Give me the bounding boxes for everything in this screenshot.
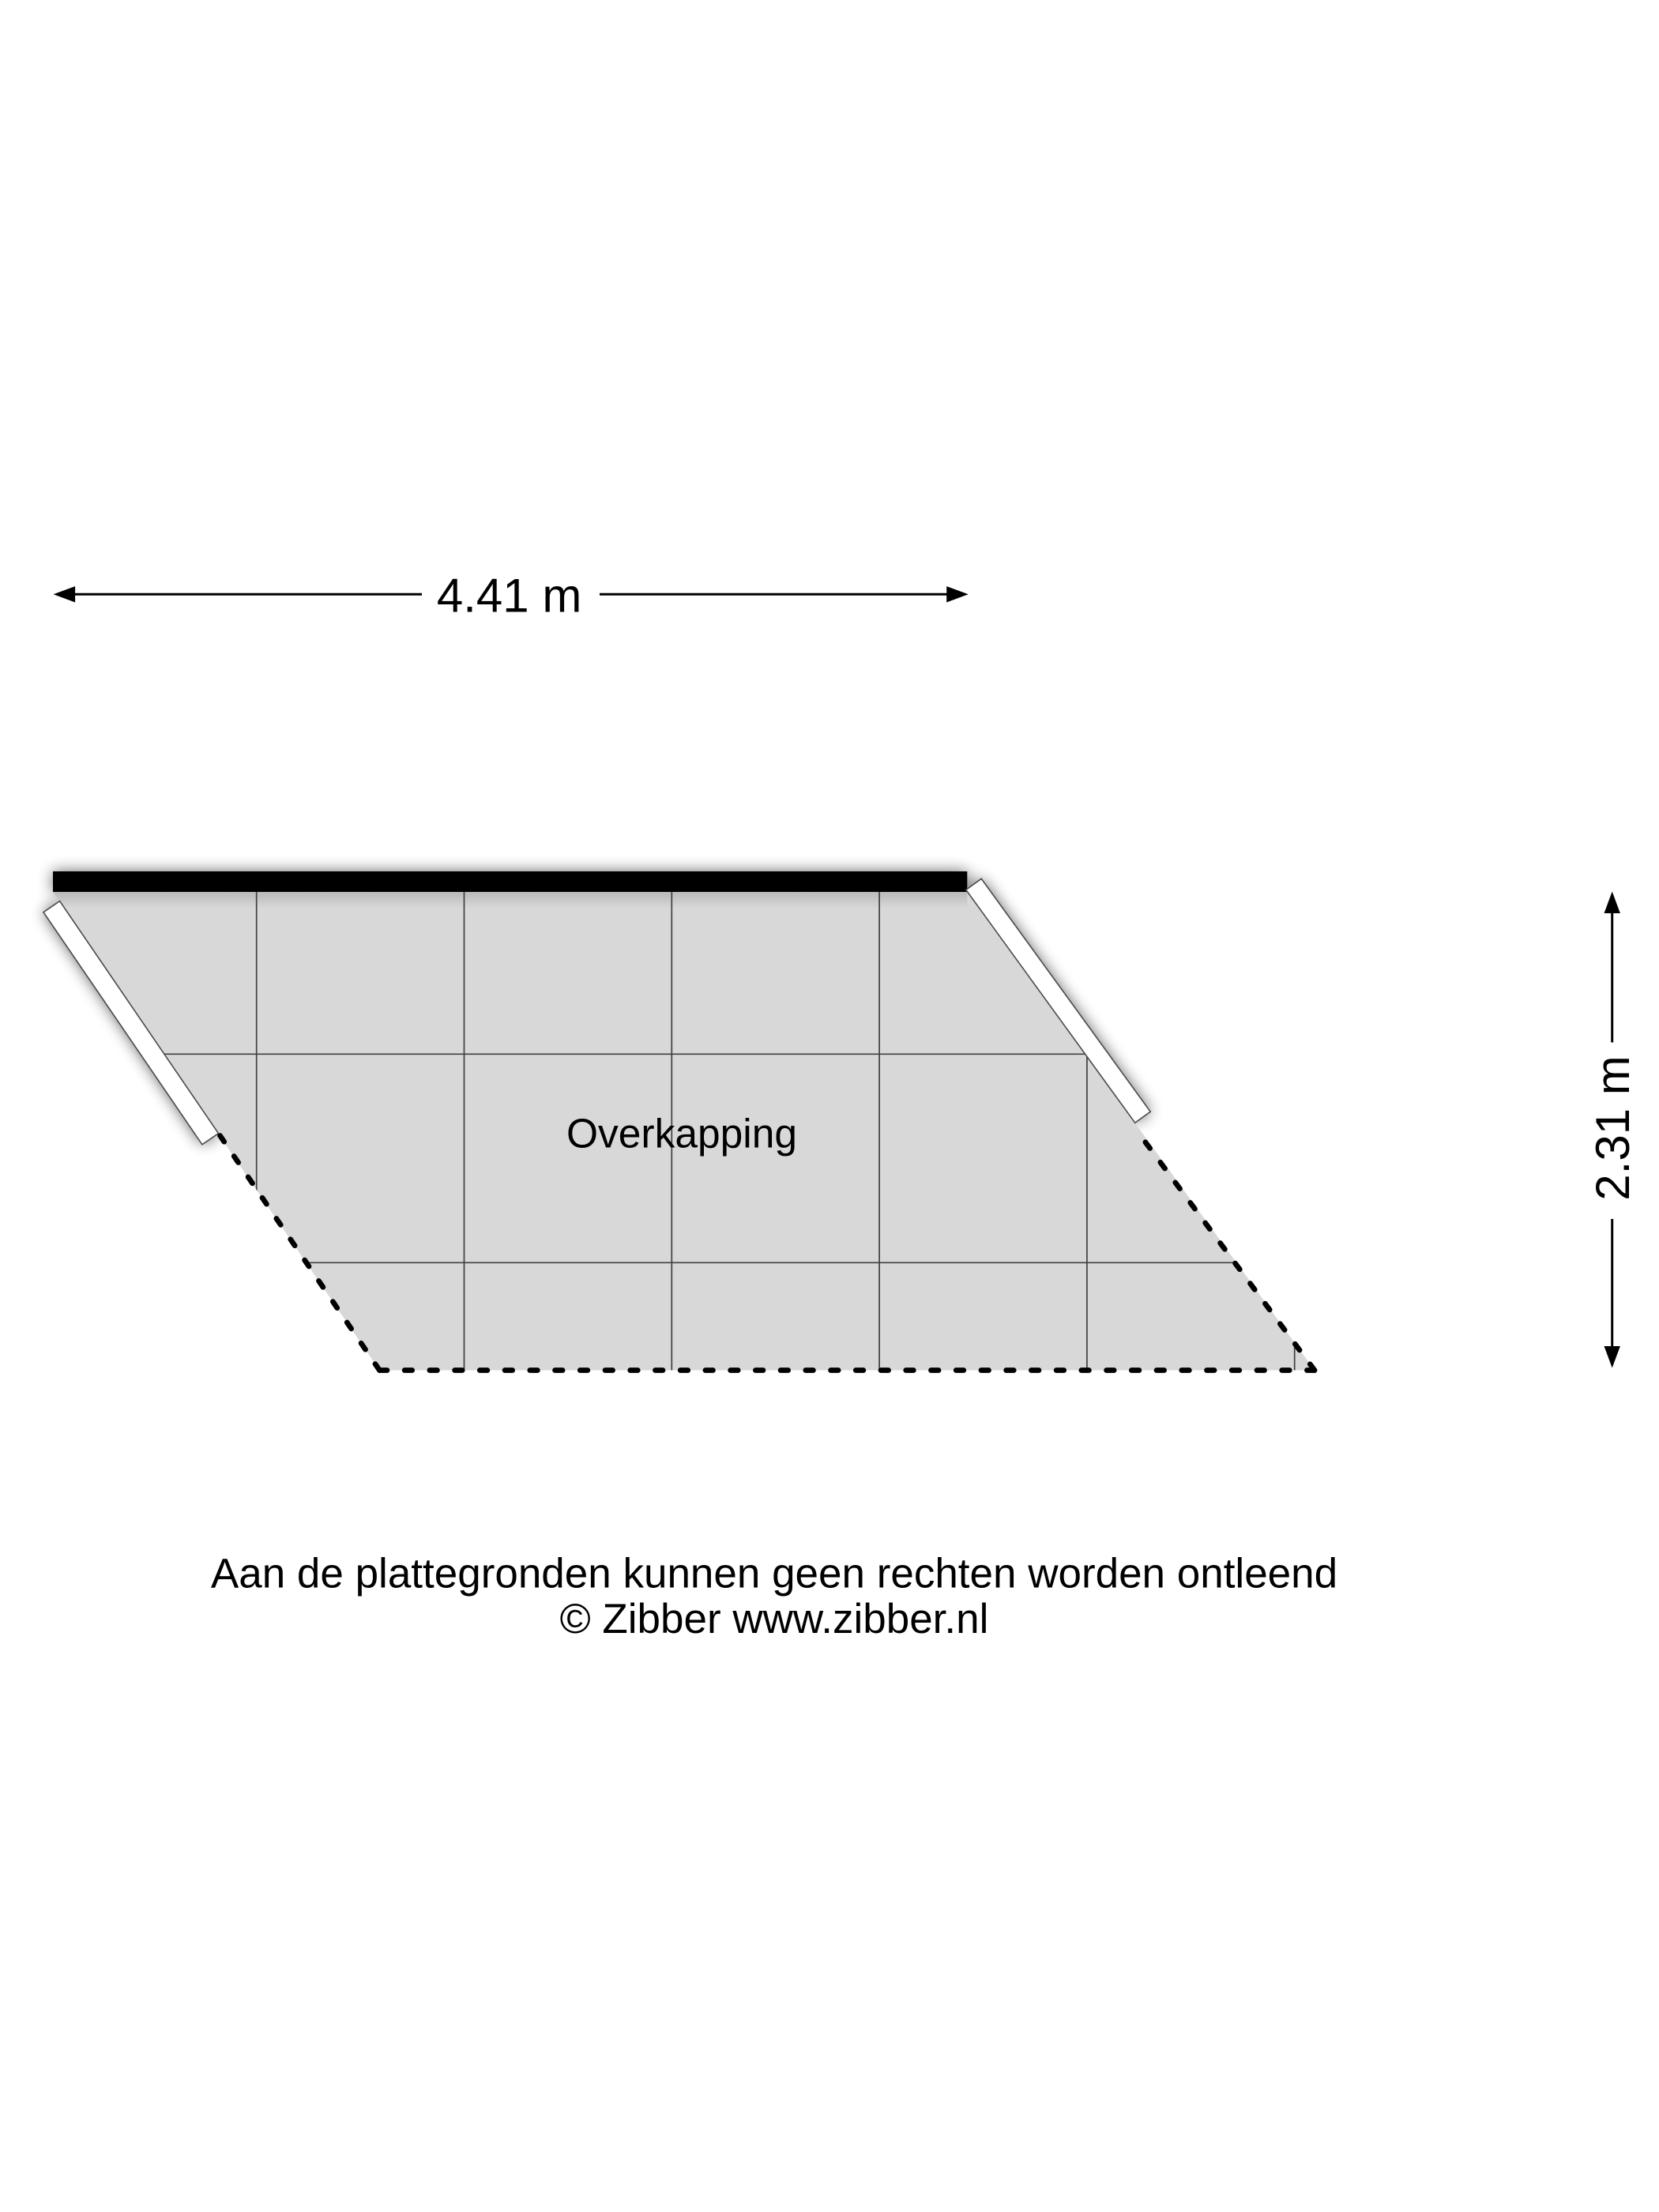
svg-text:Overkapping: Overkapping xyxy=(566,1111,797,1157)
svg-text:Aan de plattegronden kunnen ge: Aan de plattegronden kunnen geen rechten… xyxy=(211,1551,1337,1597)
svg-text:2.31 m: 2.31 m xyxy=(1586,1055,1639,1200)
svg-text:© Zibber www.zibber.nl: © Zibber www.zibber.nl xyxy=(560,1596,989,1642)
svg-text:4.41 m: 4.41 m xyxy=(437,570,581,623)
